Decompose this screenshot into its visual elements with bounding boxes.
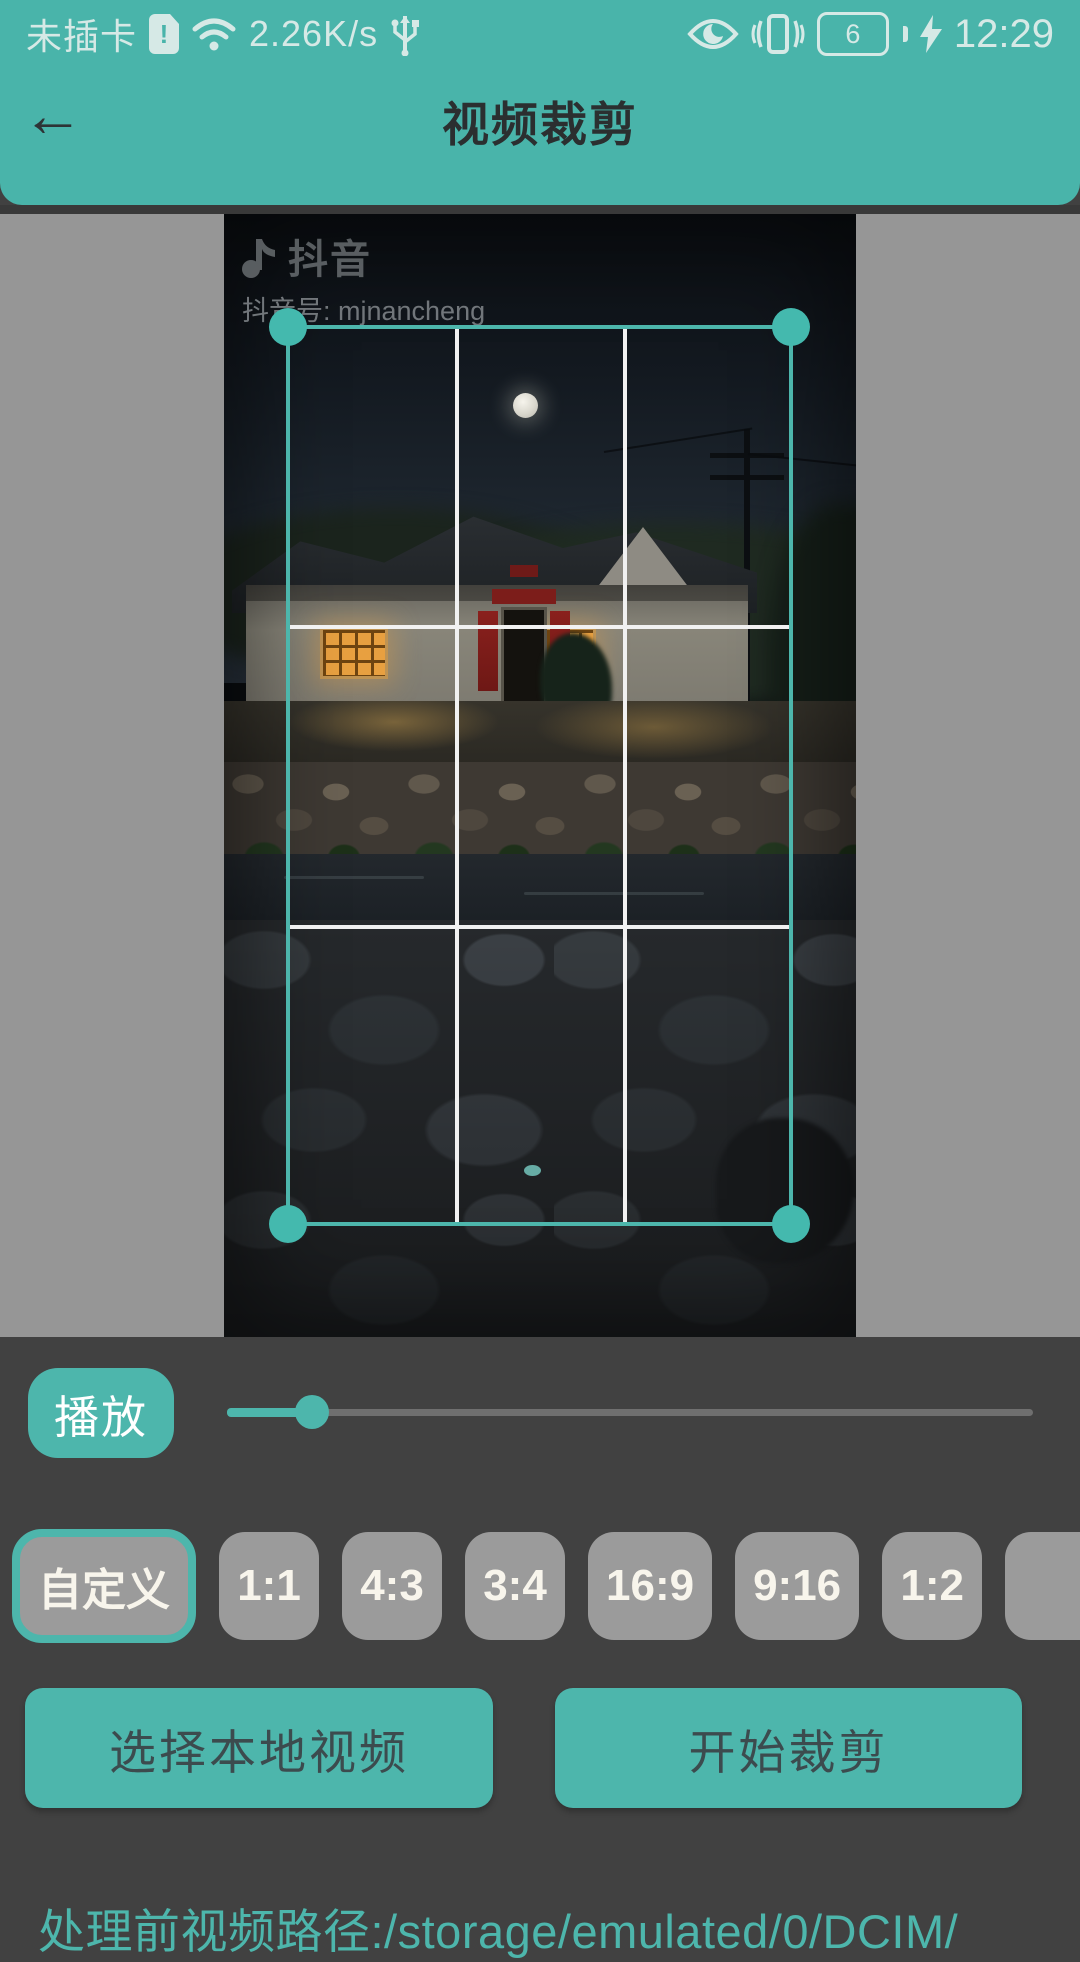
- crop-grid-line: [455, 329, 459, 1222]
- charging-bolt-icon: [920, 15, 942, 53]
- crop-handle-bottom-right[interactable]: [772, 1205, 810, 1243]
- crop-grid-line: [290, 925, 789, 929]
- app-header: 未插卡 ! 2.26K/s: [0, 0, 1080, 205]
- status-bar: 未插卡 ! 2.26K/s: [0, 0, 1080, 62]
- play-button[interactable]: 播放: [28, 1368, 174, 1458]
- network-speed: 2.26K/s: [249, 13, 378, 55]
- douyin-watermark: 抖音: [240, 227, 372, 285]
- crop-box[interactable]: [286, 325, 793, 1226]
- ratio-button-1-2[interactable]: 1:2: [882, 1532, 982, 1640]
- ratio-button-9-16[interactable]: 9:16: [735, 1532, 859, 1640]
- usb-icon: [390, 12, 420, 56]
- ratio-button-3-4[interactable]: 3:4: [465, 1532, 565, 1640]
- vibrate-icon: [751, 13, 805, 55]
- slider-track[interactable]: [227, 1409, 1033, 1416]
- source-path-text: 处理前视频路径:/storage/emulated/0/DCIM/: [38, 1893, 1080, 1962]
- page-title: 视频裁剪: [0, 86, 1080, 155]
- watermark-brand: 抖音: [288, 227, 372, 285]
- battery-cap: [903, 26, 908, 42]
- ratio-button-1-1[interactable]: 1:1: [219, 1532, 319, 1640]
- aspect-ratio-row: 自定义 1:1 4:3 3:4 16:9 9:16 1:2: [12, 1528, 1080, 1644]
- start-crop-button[interactable]: 开始裁剪: [555, 1688, 1022, 1808]
- carrier-label: 未插卡: [26, 8, 137, 60]
- crop-grid-line: [290, 625, 789, 629]
- crop-handle-top-left[interactable]: [269, 308, 307, 346]
- sim-alert-icon: !: [149, 14, 179, 54]
- eye-icon: [687, 16, 739, 52]
- crop-grid-line: [623, 329, 627, 1222]
- battery-level: 6: [845, 19, 860, 50]
- crop-handle-bottom-left[interactable]: [269, 1205, 307, 1243]
- clock: 12:29: [954, 12, 1054, 57]
- ratio-button-partial[interactable]: [1005, 1532, 1080, 1640]
- crop-handle-top-right[interactable]: [772, 308, 810, 346]
- header-shadow: [0, 205, 1080, 214]
- select-local-video-button[interactable]: 选择本地视频: [25, 1688, 493, 1808]
- ratio-button-custom[interactable]: 自定义: [12, 1529, 196, 1643]
- music-note-icon: [240, 233, 278, 279]
- seek-slider[interactable]: [227, 1395, 1033, 1429]
- ratio-button-16-9[interactable]: 16:9: [588, 1532, 712, 1640]
- battery-icon: 6: [817, 12, 889, 56]
- ratio-button-4-3[interactable]: 4:3: [342, 1532, 442, 1640]
- wifi-icon: [191, 15, 237, 53]
- video-preview[interactable]: 抖音 抖音号: mjnancheng: [224, 213, 856, 1337]
- slider-thumb[interactable]: [295, 1395, 329, 1429]
